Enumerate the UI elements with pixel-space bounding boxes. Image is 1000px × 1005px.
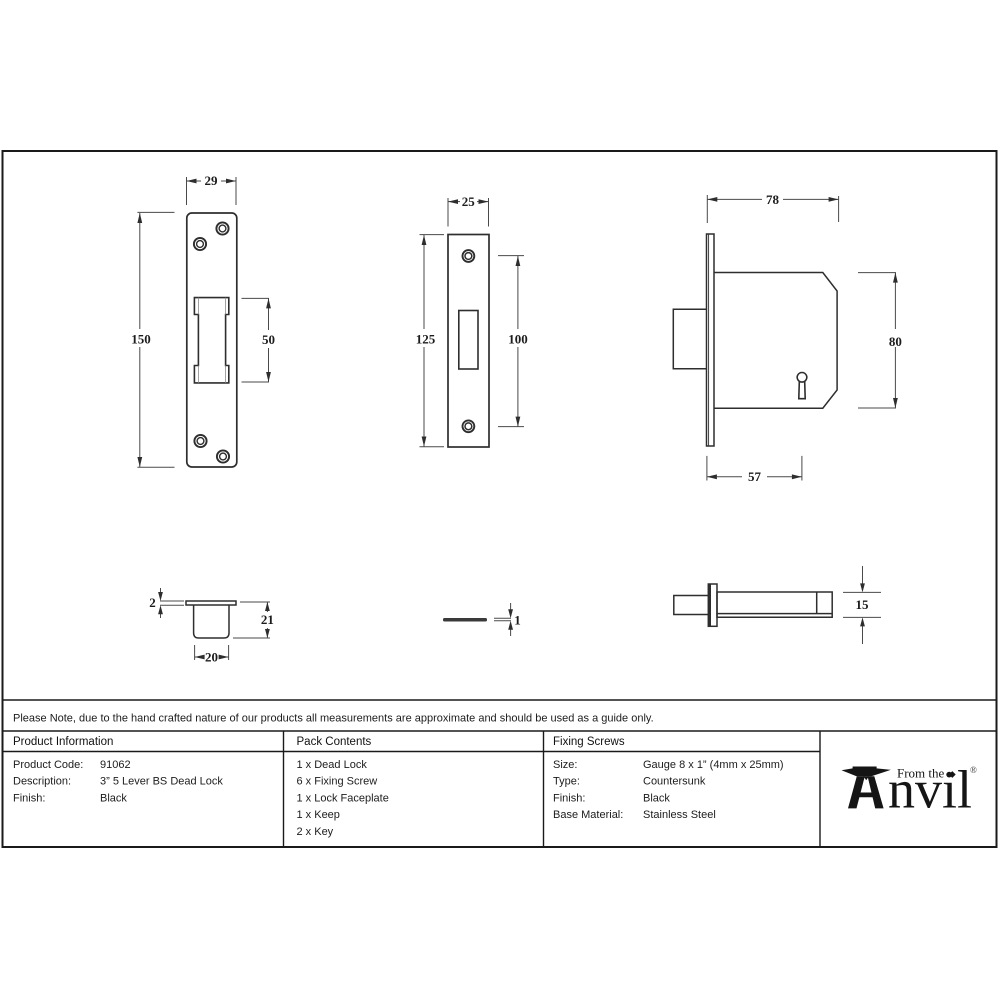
svg-text:2 x Key: 2 x Key [297,826,334,838]
svg-text:100: 100 [508,332,528,347]
svg-text:Please Note, due to the hand c: Please Note, due to the hand crafted nat… [13,713,654,725]
svg-text:®: ® [970,765,977,775]
svg-text:Fixing Screws: Fixing Screws [553,736,625,748]
svg-text:Product Code:: Product Code: [13,759,83,771]
svg-text:25: 25 [462,194,476,209]
svg-text:80: 80 [889,334,902,349]
svg-text:1: 1 [514,613,521,628]
svg-text:1 x Dead Lock: 1 x Dead Lock [297,759,368,771]
svg-text:125: 125 [416,332,436,347]
svg-text:3” 5 Lever BS Dead Lock: 3” 5 Lever BS Dead Lock [100,776,223,788]
svg-text:21: 21 [261,612,274,627]
svg-text:Stainless Steel: Stainless Steel [643,809,716,821]
svg-text:Countersunk: Countersunk [643,776,706,788]
svg-text:Finish:: Finish: [13,792,45,804]
svg-text:Black: Black [100,792,127,804]
svg-text:Product Information: Product Information [13,736,113,748]
svg-text:50: 50 [262,332,275,347]
svg-text:91062: 91062 [100,759,131,771]
svg-text:Base Material:: Base Material: [553,809,623,821]
svg-text:1 x Keep: 1 x Keep [297,809,340,821]
svg-text:Size:: Size: [553,759,577,771]
svg-text:Finish:: Finish: [553,792,585,804]
svg-text:29: 29 [205,173,219,188]
svg-text:Black: Black [643,792,670,804]
svg-text:78: 78 [766,192,780,207]
svg-text:nvil: nvil [888,760,972,820]
svg-text:1 x Lock Faceplate: 1 x Lock Faceplate [297,792,389,804]
svg-text:15: 15 [856,597,870,612]
svg-text:Pack Contents: Pack Contents [297,736,372,748]
svg-text:6 x Fixing Screw: 6 x Fixing Screw [297,776,378,788]
svg-text:Description:: Description: [13,776,71,788]
svg-text:150: 150 [131,332,151,347]
svg-text:2: 2 [149,595,156,610]
svg-text:Gauge 8 x 1” (4mm x 25mm): Gauge 8 x 1” (4mm x 25mm) [643,759,784,771]
svg-text:57: 57 [748,469,762,484]
svg-text:20: 20 [205,650,218,665]
svg-text:Type:: Type: [553,776,580,788]
